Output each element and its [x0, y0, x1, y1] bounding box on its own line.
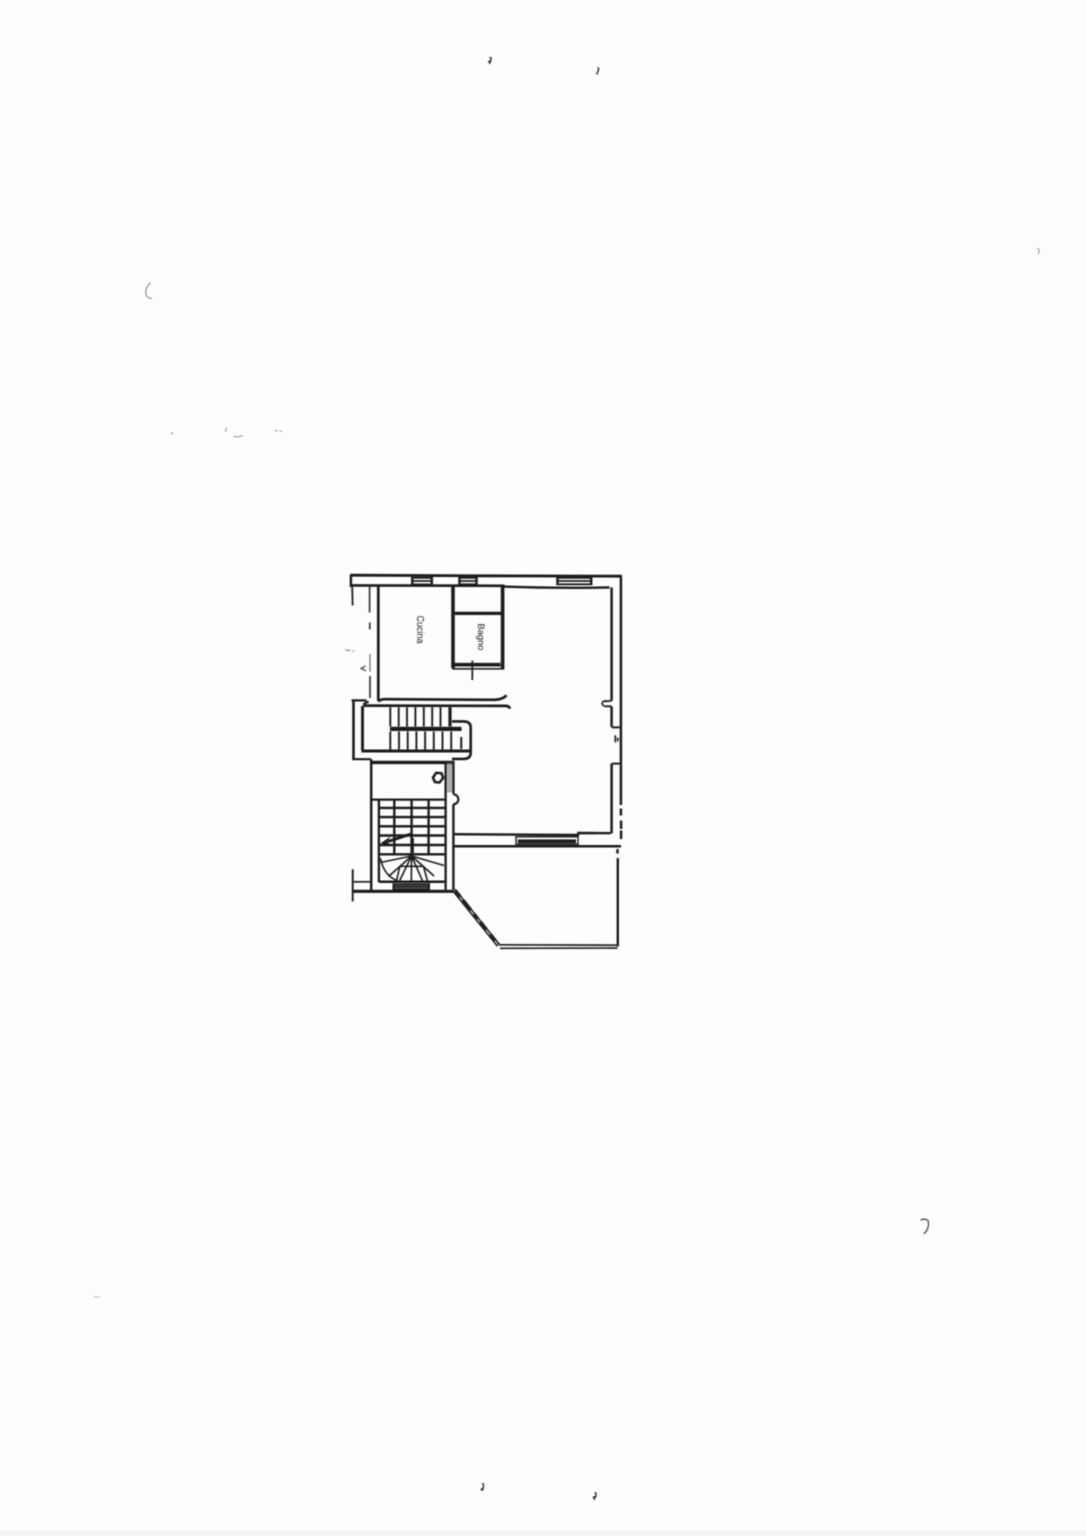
svg-text:Cucina: Cucina — [414, 616, 425, 644]
svg-text:Bagno: Bagno — [476, 624, 487, 651]
